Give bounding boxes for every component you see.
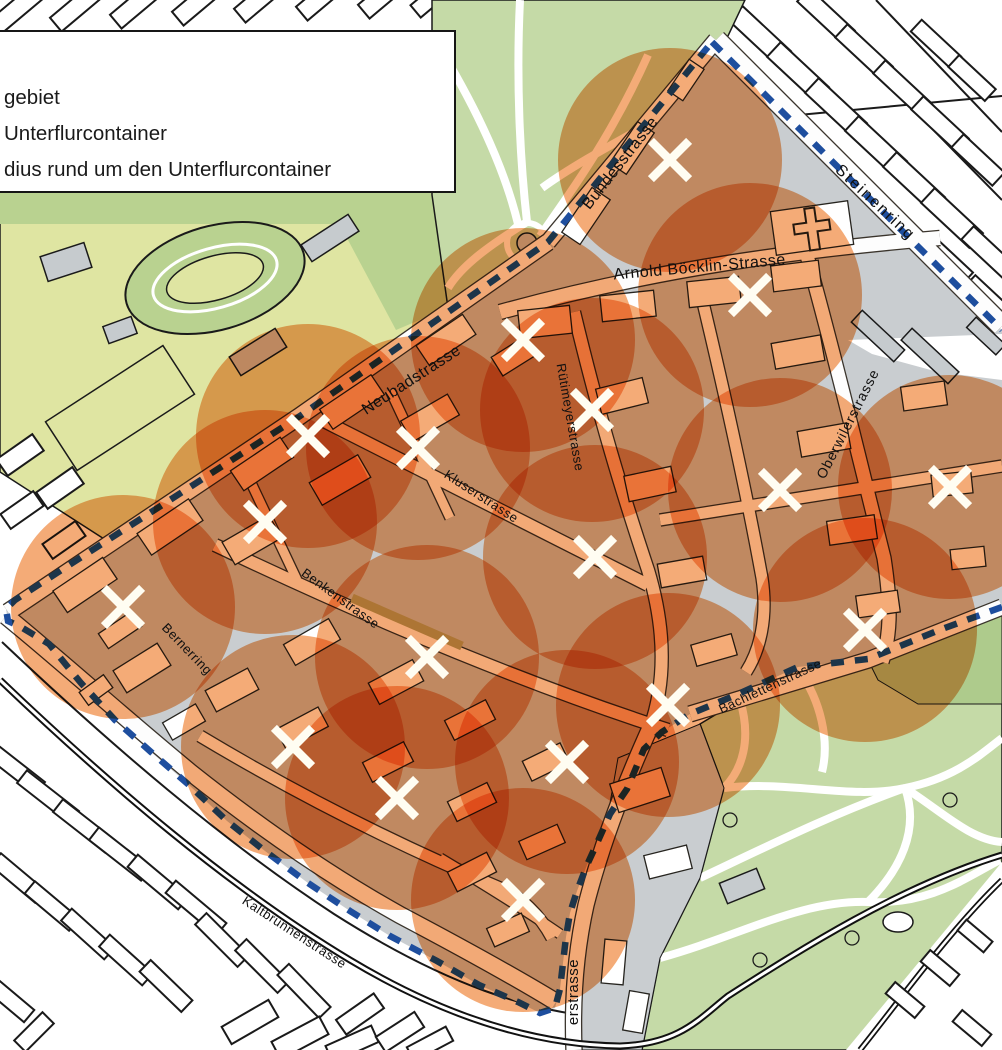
legend-item-2: dius rund um den Unterflurcontainer xyxy=(4,152,454,188)
legend: gebietUnterflurcontainerdius rund um den… xyxy=(0,30,456,193)
legend-item-1: Unterflurcontainer xyxy=(4,116,454,152)
street-label: erstrasse xyxy=(565,959,582,1025)
legend-item-0: gebiet xyxy=(4,80,454,116)
park-pond xyxy=(883,912,913,932)
map-screenshot: BundesstrasseSteinenringArnold Böcklin-S… xyxy=(0,0,1002,1050)
